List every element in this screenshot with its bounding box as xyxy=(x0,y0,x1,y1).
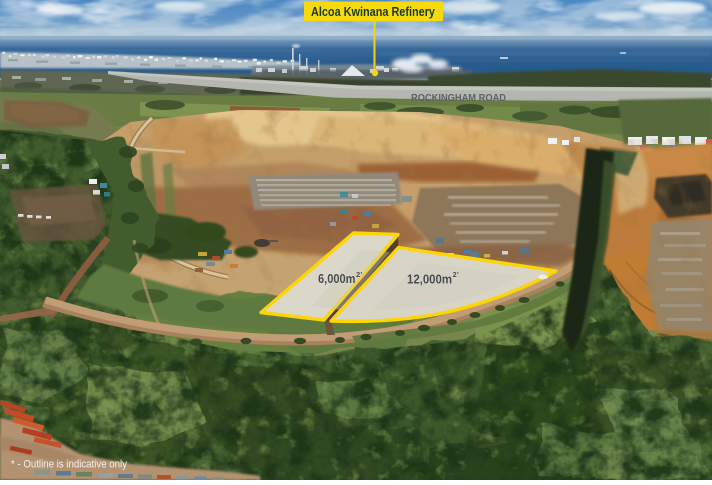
svg-text:2ʼ: 2ʼ xyxy=(356,270,362,279)
svg-text:12,000m: 12,000m xyxy=(407,272,452,286)
svg-text:2ʼ: 2ʼ xyxy=(453,270,459,279)
svg-text:ROCKINGHAM ROAD: ROCKINGHAM ROAD xyxy=(411,93,506,104)
svg-text:Alcoa Kwinana Refinery: Alcoa Kwinana Refinery xyxy=(311,4,436,19)
svg-text:6,000m: 6,000m xyxy=(318,272,356,286)
svg-text:* - Outline is indicative only: * - Outline is indicative only xyxy=(11,459,128,471)
